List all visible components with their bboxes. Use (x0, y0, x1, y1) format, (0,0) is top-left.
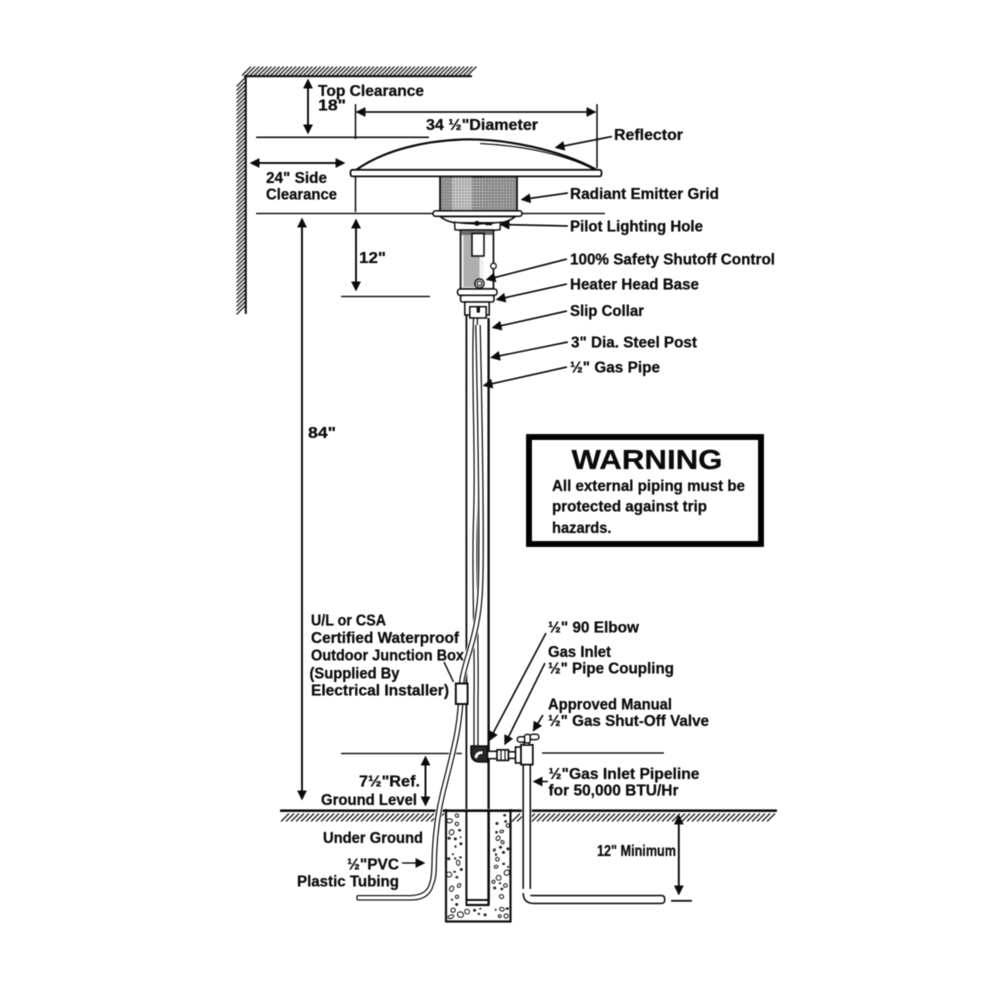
svg-text:½" Gas Pipe: ½" Gas Pipe (570, 360, 660, 377)
svg-text:100% Safety Shutoff Control: 100% Safety Shutoff Control (570, 252, 775, 269)
svg-text:84": 84" (308, 425, 336, 442)
svg-text:U/L or CSA: U/L or CSA (311, 613, 386, 630)
svg-text:Reflector: Reflector (614, 127, 683, 144)
svg-text:Slip Collar: Slip Collar (570, 303, 644, 320)
svg-text:hazards.: hazards. (552, 520, 612, 537)
svg-text:Outdoor Junction Box: Outdoor Junction Box (311, 648, 464, 665)
svg-text:Gas Inlet: Gas Inlet (548, 644, 611, 661)
svg-text:Certified Waterproof: Certified Waterproof (311, 630, 460, 647)
svg-text:18": 18" (318, 98, 346, 115)
svg-text:3" Dia. Steel Post: 3" Dia. Steel Post (571, 335, 697, 352)
svg-text:½"Gas Inlet Pipeline: ½"Gas Inlet Pipeline (549, 766, 700, 783)
svg-text:Plastic Tubing: Plastic Tubing (297, 874, 399, 891)
svg-text:for 50,000 BTU/Hr: for 50,000 BTU/Hr (549, 783, 679, 800)
svg-text:12": 12" (359, 250, 386, 267)
svg-text:All external piping must be: All external piping must be (552, 478, 745, 495)
svg-text:Electrical Installer): Electrical Installer) (311, 683, 449, 700)
svg-text:Pilot Lighting Hole: Pilot Lighting Hole (570, 219, 703, 236)
svg-text:protected against trip: protected against trip (552, 499, 707, 516)
svg-text:34 ½"Diameter: 34 ½"Diameter (426, 117, 538, 134)
svg-text:Heater Head Base: Heater Head Base (570, 277, 699, 294)
svg-text:½" Pipe Coupling: ½" Pipe Coupling (548, 661, 674, 678)
svg-text:12" Minimum: 12" Minimum (597, 843, 676, 860)
svg-text:7½"Ref.: 7½"Ref. (359, 774, 420, 791)
svg-text:24" Side: 24" Side (266, 170, 327, 187)
svg-text:Under Ground: Under Ground (323, 830, 423, 847)
svg-text:WARNING: WARNING (572, 444, 723, 475)
svg-text:½" Gas Shut-Off Valve: ½" Gas Shut-Off Valve (548, 713, 709, 730)
svg-text:Approved Manual: Approved Manual (548, 697, 672, 714)
svg-text:Radiant Emitter Grid: Radiant Emitter Grid (570, 186, 719, 203)
svg-text:(Supplied By: (Supplied By (310, 666, 400, 683)
svg-text:Clearance: Clearance (266, 187, 337, 204)
svg-text:½" 90 Elbow: ½" 90 Elbow (548, 620, 640, 637)
svg-text:Ground Level: Ground Level (321, 792, 417, 809)
svg-text:½"PVC: ½"PVC (347, 857, 399, 874)
